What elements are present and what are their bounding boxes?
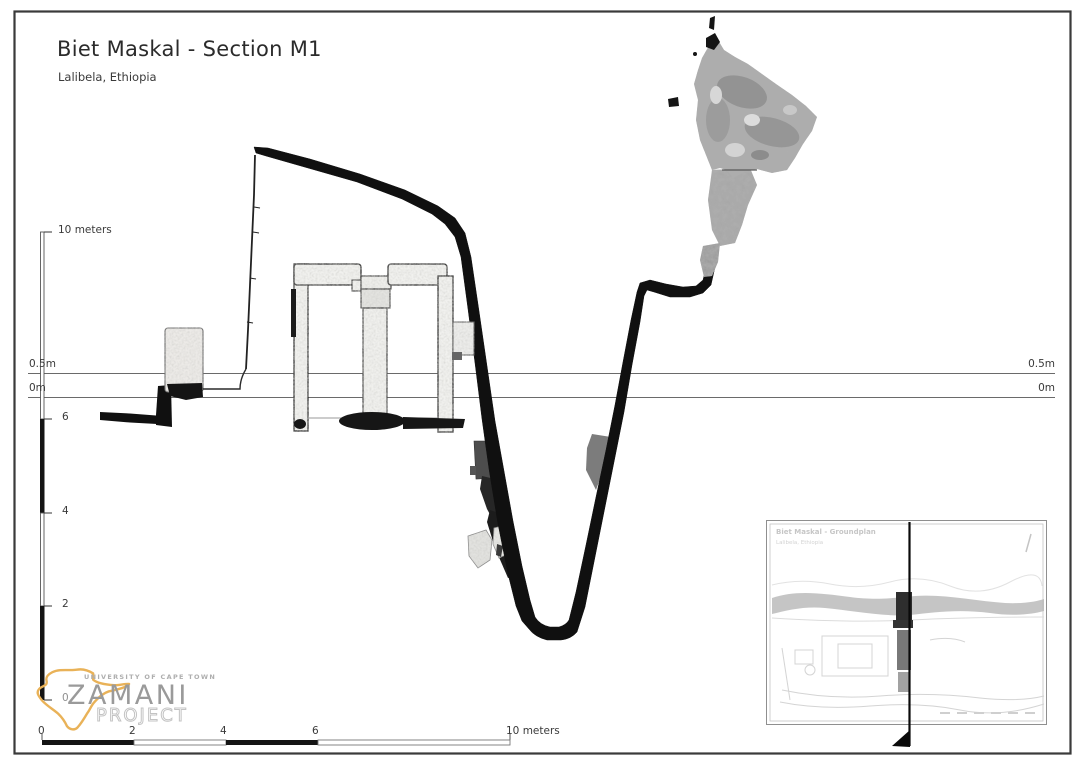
ground-line — [203, 369, 246, 389]
section-cut-profile — [254, 147, 716, 640]
page-title: Biet Maskal - Section M1 — [57, 38, 322, 61]
horizontal-scale-bar — [42, 734, 510, 745]
inset-title: Biet Maskal - Groundplan — [776, 529, 876, 537]
vscale-label-10: 10 meters — [58, 225, 112, 237]
section-arrow-icon — [892, 730, 910, 747]
sheet-graphics — [0, 0, 1086, 768]
logo-project-text: PROJECT — [96, 706, 188, 726]
cliff-edge-line — [246, 155, 260, 369]
datum-label-05m-left: 0.5m — [29, 359, 56, 371]
datum-label-0m-right: 0m — [1005, 383, 1055, 395]
datum-label-0m-left: 0m — [29, 383, 46, 395]
rock-face — [668, 16, 817, 178]
vertical-scale-bar — [40, 232, 52, 700]
hscale-label-2: 2 — [129, 726, 136, 738]
small-structure-block — [165, 328, 203, 392]
ground-profile-left — [100, 385, 172, 427]
inset-subtitle: Lalibela, Ethiopia — [776, 540, 823, 546]
hscale-label-10: 10 meters — [506, 726, 560, 738]
rock-neck — [700, 168, 757, 277]
section-drawing — [100, 16, 817, 640]
vscale-label-2: 2 — [62, 599, 69, 611]
grey-nub — [470, 466, 476, 475]
hscale-label-4: 4 — [220, 726, 227, 738]
hscale-label-0: 0 — [38, 726, 45, 738]
vscale-label-4: 4 — [62, 506, 69, 518]
page-subtitle: Lalibela, Ethiopia — [58, 71, 157, 84]
drawing-sheet: Biet Maskal - Section M1 Lalibela, Ethio… — [0, 0, 1086, 768]
wall-shadow — [291, 289, 296, 337]
church-cross-section — [291, 264, 474, 432]
hscale-label-6: 6 — [312, 726, 319, 738]
wall-nub — [452, 352, 462, 360]
inset-map — [767, 521, 1047, 748]
vscale-label-6: 6 — [62, 412, 69, 424]
datum-label-05m-right: 0.5m — [1005, 359, 1055, 371]
